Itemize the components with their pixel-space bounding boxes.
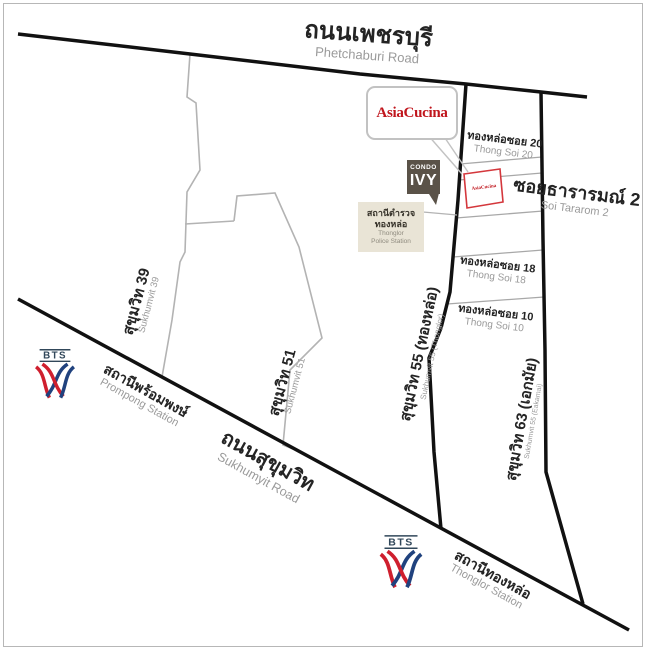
police-eng-line1: Thonglor (358, 230, 424, 238)
police-connector-line (423, 212, 457, 215)
ekamai-road-line (541, 92, 583, 604)
bts-logo: BTS (34, 348, 76, 404)
police-thai-line1: สถานีตำรวจ (358, 208, 424, 219)
condo-ivy-line1: CONDO (407, 165, 440, 172)
condo-ivy-line2: IVY (407, 173, 440, 189)
bts-blue-ribbon (407, 554, 421, 587)
bts-logo-text: BTS (43, 351, 67, 362)
label-phetchaburi-road: ถนนเพชรบุรี Phetchaburi Road (302, 16, 433, 67)
police-eng-line2: Police Station (358, 238, 424, 246)
police-thai-line2: ทองหล่อ (358, 219, 424, 230)
condo-ivy-badge: CONDO IVY (407, 160, 440, 194)
bts-logo: BTS (378, 534, 424, 594)
sukhumvit39-road-line (162, 54, 200, 377)
sukhumvit-road-line (18, 299, 629, 630)
asiacucina-wordmark: AsiaCucina (376, 105, 447, 122)
soi-line-tararom-south (456, 211, 543, 218)
map-canvas: ถนนเพชรบุรี Phetchaburi Road ทองหล่อซอย … (0, 0, 646, 650)
condo-ivy-pointer (429, 193, 439, 205)
sukhumvit39-51-connector-line (185, 221, 234, 224)
map-geometry (0, 0, 646, 650)
bts-logo-text: BTS (388, 536, 414, 548)
asiacucina-callout-bubble: AsiaCucina (366, 86, 458, 140)
police-station-badge: สถานีตำรวจ ทองหล่อ Thonglor Police Stati… (358, 202, 424, 252)
bts-blue-ribbon (61, 367, 74, 398)
